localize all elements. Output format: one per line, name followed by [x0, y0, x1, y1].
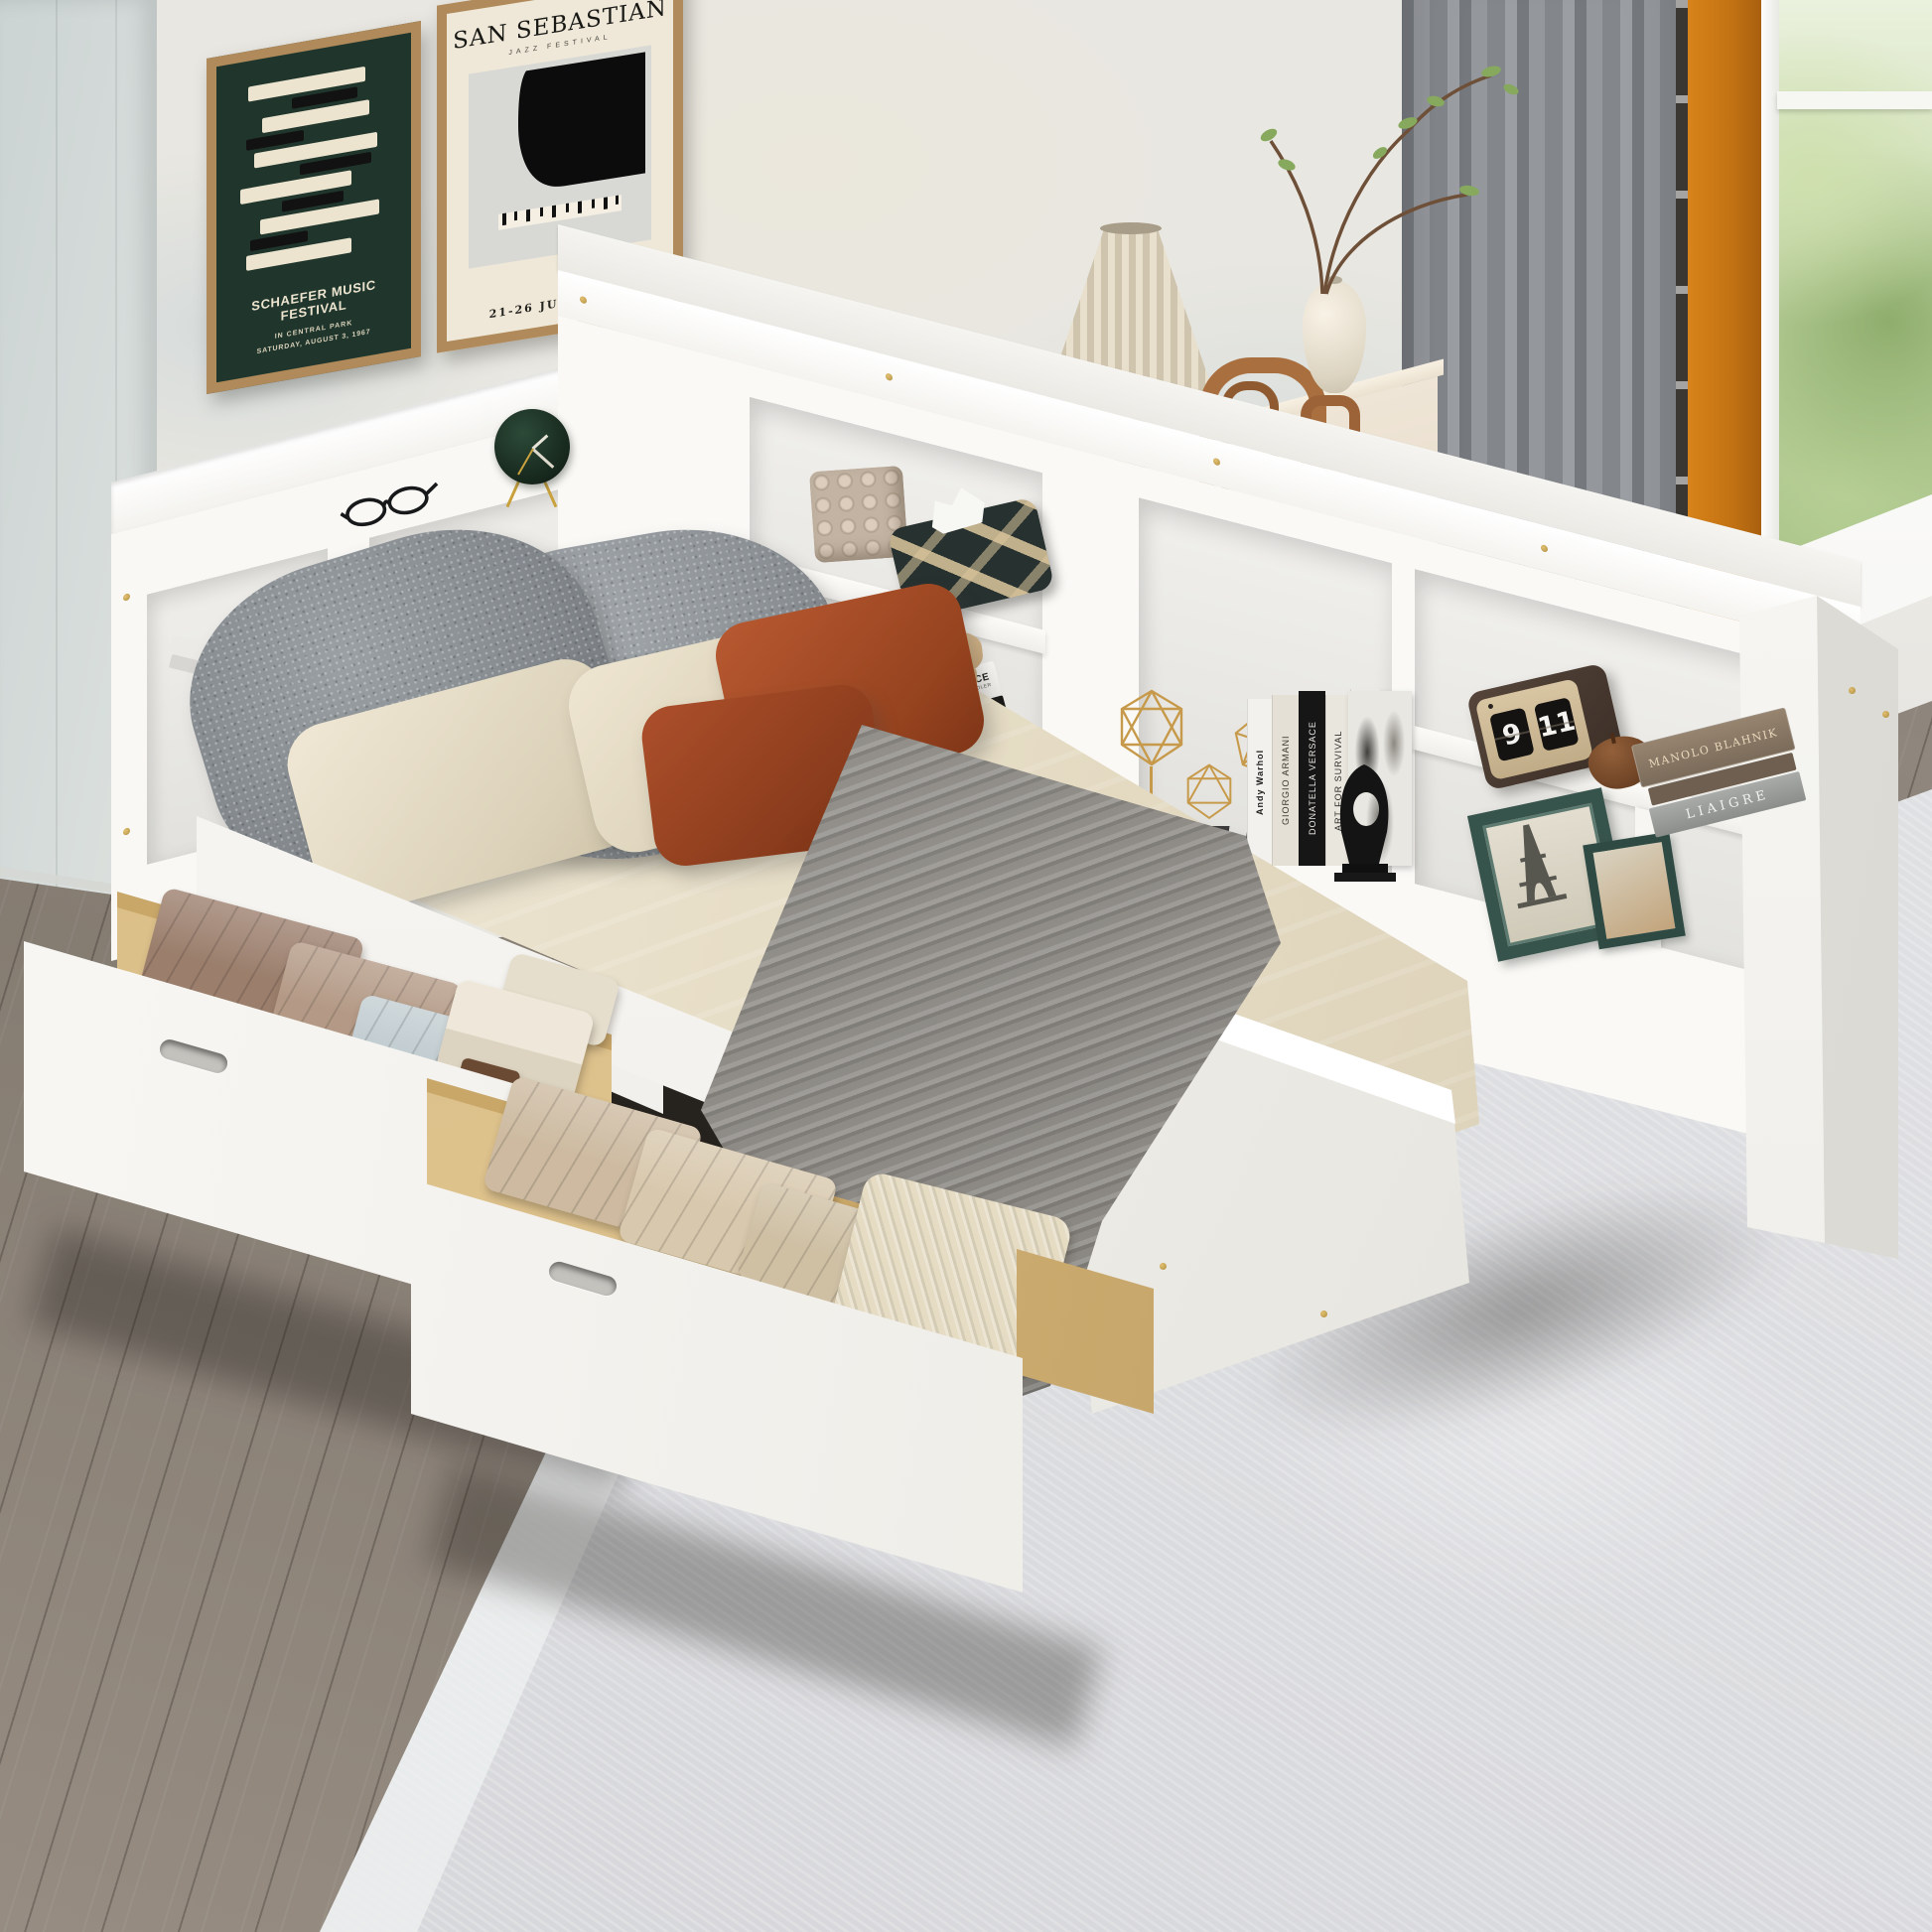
- designer-book-stack: MANOLO BLAHNIK LIAIGRE: [1631, 707, 1810, 838]
- flip-clock-minute: 11: [1534, 697, 1580, 752]
- reading-glasses: [336, 474, 446, 539]
- flip-clock-button: [1487, 703, 1493, 709]
- book-spine: GIORGIO ARMANI: [1272, 695, 1299, 866]
- bedroom-scene: SCHAEFER MUSIC FESTIVAL IN CENTRAL PARK …: [0, 0, 1932, 1932]
- green-desk-clock: [494, 409, 572, 508]
- flip-clock-hour: 9: [1489, 707, 1535, 761]
- screw-icon: [1320, 1311, 1327, 1317]
- screw-icon: [1160, 1263, 1167, 1270]
- book-spine: Andy Warhol: [1247, 699, 1272, 866]
- eiffel-tower-icon: [1482, 808, 1586, 921]
- tissue: [923, 483, 991, 539]
- photo-frame-small: [1583, 832, 1685, 949]
- book-spine: DONATELLA VERSACE: [1299, 691, 1325, 866]
- black-abstract-sculpture: [1334, 762, 1396, 884]
- flip-clock-face: 9 11: [1474, 678, 1593, 780]
